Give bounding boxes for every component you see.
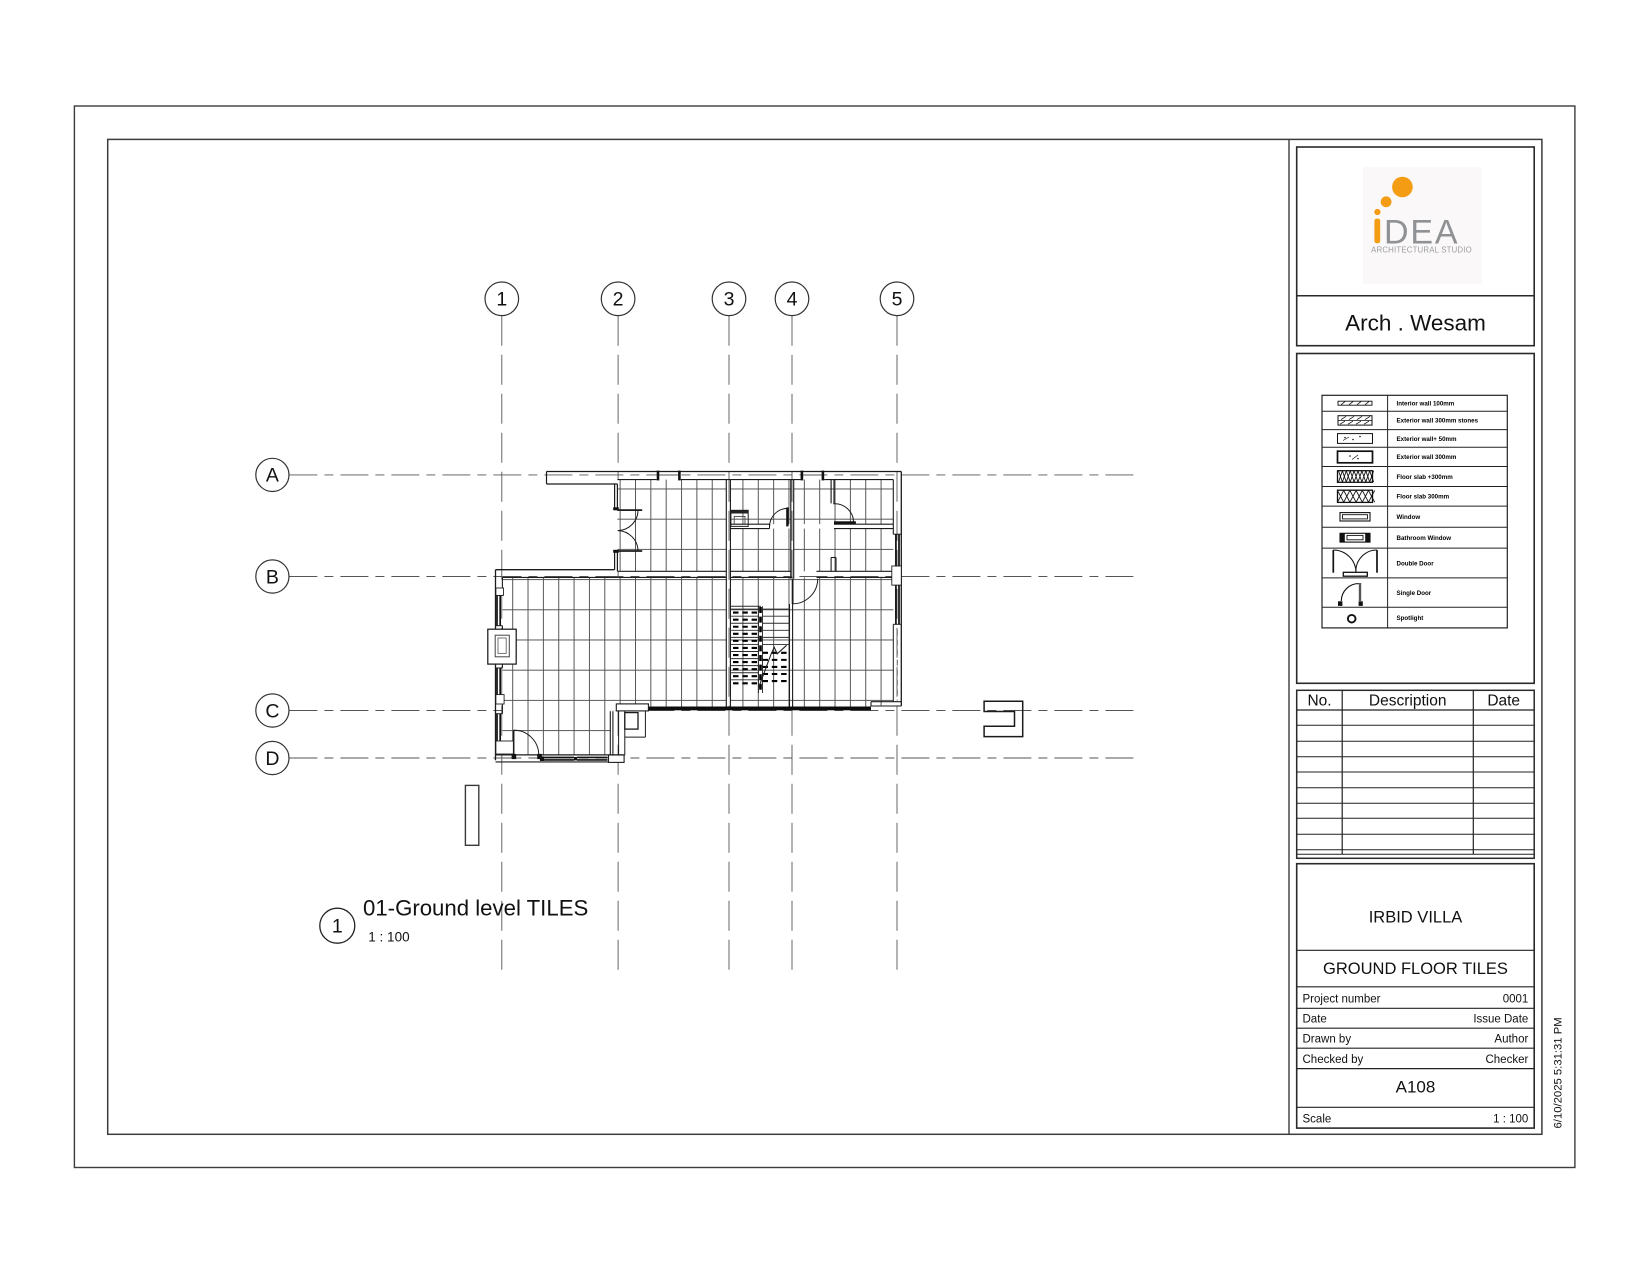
svg-text:Single Door: Single Door — [1397, 590, 1432, 597]
svg-text:GROUND FLOOR TILES: GROUND FLOOR TILES — [1323, 960, 1508, 978]
svg-text:ARCHITECTURAL STUDIO: ARCHITECTURAL STUDIO — [1371, 245, 1472, 254]
svg-text:4: 4 — [787, 289, 798, 311]
svg-text:Exterior wall 300mm stones: Exterior wall 300mm stones — [1397, 418, 1479, 425]
svg-text:Date: Date — [1303, 1013, 1327, 1025]
svg-text:IRBID VILLA: IRBID VILLA — [1369, 909, 1463, 927]
svg-text:2: 2 — [613, 289, 624, 311]
svg-text:1 : 100: 1 : 100 — [368, 930, 409, 945]
svg-text:Floor slab 300mm: Floor slab 300mm — [1397, 494, 1450, 501]
svg-text:A: A — [266, 465, 279, 487]
svg-text:Floor slab +300mm: Floor slab +300mm — [1397, 474, 1454, 481]
svg-text:Drawn by: Drawn by — [1303, 1034, 1352, 1046]
svg-text:01-Ground level TILES: 01-Ground level TILES — [363, 896, 588, 921]
svg-text:Author: Author — [1494, 1034, 1528, 1046]
svg-text:Date: Date — [1487, 692, 1520, 709]
svg-text:1: 1 — [496, 289, 507, 311]
svg-text:6/10/2025 5:31:31 PM: 6/10/2025 5:31:31 PM — [1553, 1017, 1565, 1128]
svg-text:Arch . Wesam: Arch . Wesam — [1345, 311, 1486, 336]
svg-text:Bathroom Window: Bathroom Window — [1397, 535, 1452, 542]
svg-text:1: 1 — [332, 916, 343, 938]
svg-text:Exterior wall+ 50mm: Exterior wall+ 50mm — [1397, 436, 1458, 443]
svg-text:A108: A108 — [1396, 1078, 1436, 1097]
svg-text:Double Door: Double Door — [1397, 560, 1435, 567]
svg-text:B: B — [266, 566, 279, 588]
svg-text:Description: Description — [1369, 692, 1447, 709]
svg-text:Project number: Project number — [1303, 993, 1381, 1005]
svg-text:Interior wall 100mm: Interior wall 100mm — [1397, 401, 1455, 408]
svg-text:Scale: Scale — [1303, 1113, 1332, 1125]
svg-text:Checker: Checker — [1485, 1054, 1528, 1066]
svg-text:5: 5 — [892, 289, 903, 311]
svg-text:Issue Date: Issue Date — [1473, 1013, 1528, 1025]
svg-text:No.: No. — [1307, 692, 1331, 709]
svg-text:Spotlight: Spotlight — [1397, 615, 1424, 622]
svg-text:1 : 100: 1 : 100 — [1493, 1113, 1528, 1125]
svg-text:0001: 0001 — [1503, 993, 1529, 1005]
svg-text:Checked by: Checked by — [1303, 1054, 1364, 1066]
svg-text:Window: Window — [1397, 514, 1421, 521]
svg-text:Exterior wall 300mm: Exterior wall 300mm — [1397, 454, 1457, 461]
svg-text:3: 3 — [724, 289, 735, 311]
svg-text:C: C — [265, 700, 279, 722]
svg-text:D: D — [265, 748, 279, 770]
